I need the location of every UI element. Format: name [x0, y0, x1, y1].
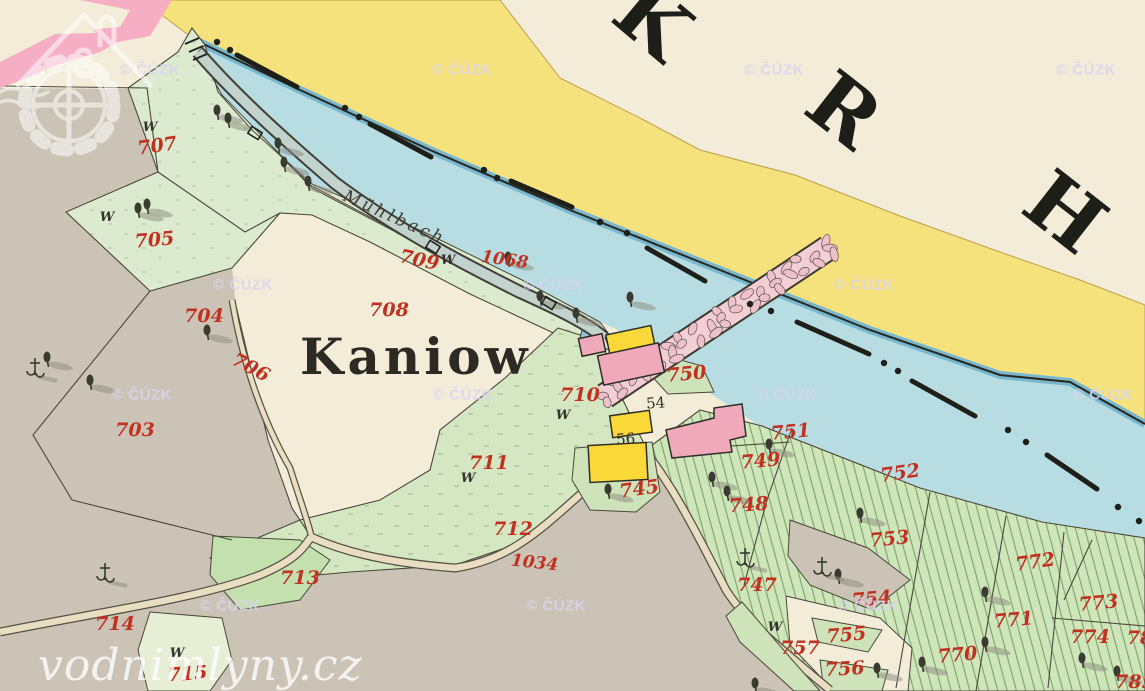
parcel-number: 750: [666, 361, 707, 386]
parcel-number: 704: [184, 305, 224, 327]
parcel-number: 753: [869, 526, 910, 551]
channel-dot: [494, 175, 500, 181]
parcel-number: 714: [95, 613, 135, 635]
channel-dot: [1136, 518, 1142, 524]
channel-dot: [597, 219, 603, 225]
parcel-number: 757: [780, 637, 820, 659]
channel-dot: [356, 114, 362, 120]
parcel-number: 785: [1115, 671, 1145, 691]
parcel-number: 770: [937, 642, 978, 667]
parcel-number: 78: [1127, 627, 1145, 649]
parcel-number: 756: [824, 657, 865, 681]
channel-dot: [1023, 439, 1029, 445]
channel-dot: [227, 47, 233, 53]
house-number: 56: [615, 429, 635, 448]
channel-dot: [881, 360, 887, 366]
parcel-number: 705: [134, 227, 175, 252]
map-viewport[interactable]: Kaniow Mühlbach 707705709106870871071171…: [0, 0, 1145, 691]
channel-dot: [895, 368, 901, 374]
channel-dot: [214, 39, 220, 45]
channel-dot: [1005, 427, 1011, 433]
parcel-number: 710: [560, 384, 600, 406]
village-name-label: Kaniow: [300, 327, 532, 386]
parcel-number: 708: [369, 299, 409, 321]
building-masonry-2: [578, 334, 605, 357]
weir-cobble: [790, 255, 801, 263]
house-number: 54: [645, 393, 665, 412]
parcel-number: 747: [737, 574, 777, 596]
meadow-w-mark: W: [556, 408, 572, 423]
parcel-number: 749: [740, 448, 781, 473]
meadow-w-mark: W: [100, 210, 116, 225]
parcel-number: 774: [1070, 626, 1110, 648]
parcel-number: 712: [493, 518, 533, 540]
meadow-w-mark: W: [461, 471, 477, 486]
channel-dot: [481, 167, 487, 173]
cadastral-map-canvas: Kaniow Mühlbach 707705709106870871071171…: [0, 0, 1145, 691]
channel-dot: [342, 105, 348, 111]
parcel-number: 703: [115, 419, 155, 441]
parcel-number: 751: [770, 419, 811, 444]
watermill-logo-watermark: [0, 0, 170, 190]
parcel-number: 771: [993, 607, 1034, 632]
channel-dot: [768, 308, 774, 314]
channel-dot: [624, 230, 630, 236]
channel-dot: [1115, 504, 1121, 510]
meadow-w-mark: W: [441, 253, 457, 268]
meadow-w-mark: W: [768, 620, 784, 635]
weir-cobble: [697, 335, 705, 348]
channel-dot: [747, 301, 753, 307]
parcel-number: 755: [826, 622, 867, 647]
parcel-number: 754: [851, 586, 892, 611]
parcel-number: 713: [280, 567, 320, 589]
parcel-number: 773: [1078, 590, 1119, 615]
parcel-number: 748: [728, 493, 769, 518]
site-watermark: vodnimlyny.cz: [38, 640, 363, 691]
